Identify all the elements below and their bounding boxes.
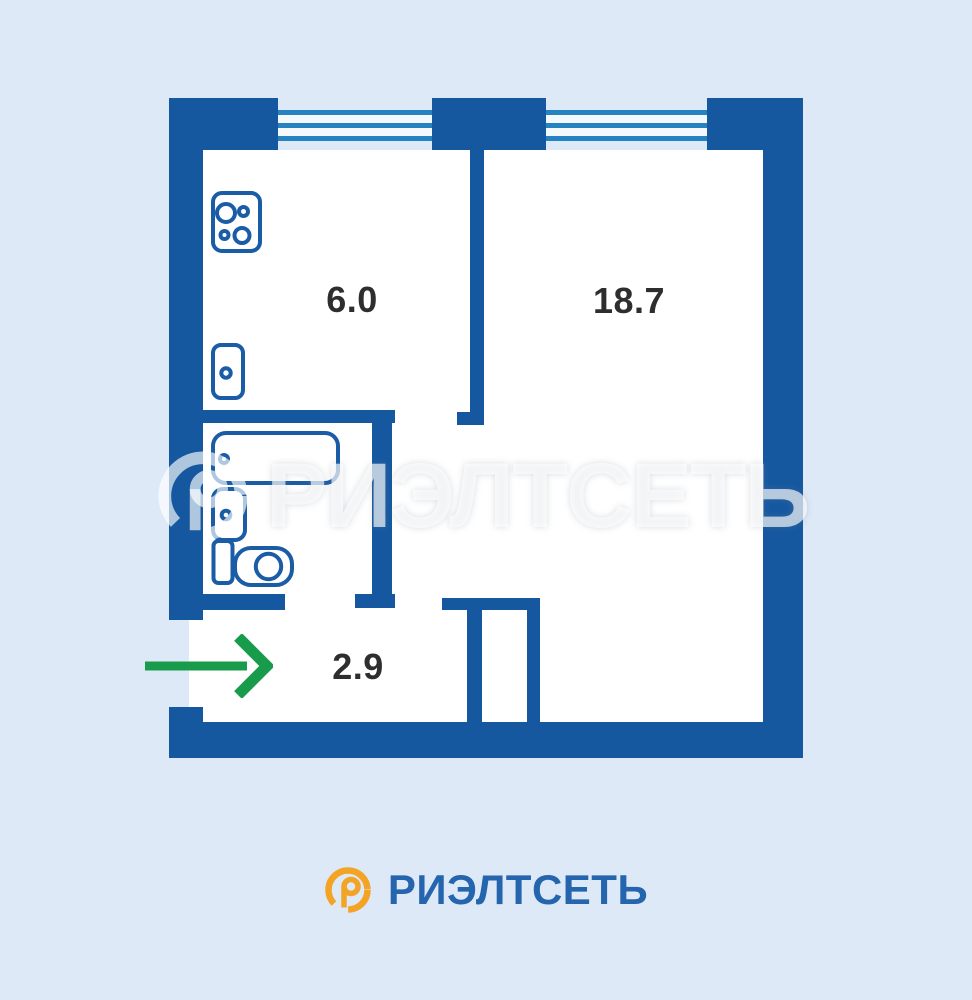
realtnet-logo-text: РИЭЛТСЕТЬ: [388, 869, 648, 911]
wall-kitchen-bottom: [203, 410, 395, 423]
window-kitchen: [278, 110, 432, 141]
kitchen-sink-icon: [211, 343, 246, 401]
realtnet-logo-icon: [324, 866, 372, 914]
room-area-label-hallway: 2.9: [332, 646, 384, 688]
wall-hallway-jamb-right: [527, 610, 540, 722]
window-pane-line: [546, 136, 707, 141]
room-area-label-living: 18.7: [593, 280, 665, 322]
window-living-room: [546, 110, 707, 141]
room-area-label-kitchen: 6.0: [326, 279, 378, 321]
wall-kitchen-living-divider: [470, 148, 484, 425]
wall-hallway-top: [442, 598, 540, 610]
bathtub-icon: [211, 431, 341, 486]
window-pane-line: [278, 123, 432, 128]
window-pane-line: [278, 136, 432, 141]
wall-pier-top-left: [169, 98, 278, 150]
realtnet-logo: РИЭЛТСЕТЬ: [0, 860, 972, 920]
wall-bathroom-bottom: [203, 594, 285, 610]
wall-bottom: [169, 722, 803, 758]
wall-hallway-jamb-left: [467, 610, 482, 722]
wall-right: [763, 150, 803, 758]
wall-kitchen-living-divider-foot: [457, 412, 484, 425]
entrance-arrow-icon: [141, 634, 273, 698]
window-pane-line: [546, 110, 707, 115]
wall-pier-top-middle: [432, 98, 546, 150]
window-pane-line: [278, 110, 432, 115]
floorplan-canvas: 6.0 18.7 2.9 РИЭЛТСЕТЬ РИЭЛТСЕТЬ: [0, 0, 972, 1000]
wall-left-upper: [169, 150, 203, 620]
wall-bathroom-right-cap: [355, 594, 395, 608]
washbasin-icon: [211, 487, 248, 543]
window-pane-line: [546, 123, 707, 128]
wall-pier-top-right: [707, 98, 803, 150]
stove-icon: [211, 191, 263, 254]
toilet-icon: [211, 539, 296, 589]
wall-bathroom-right: [372, 423, 392, 595]
